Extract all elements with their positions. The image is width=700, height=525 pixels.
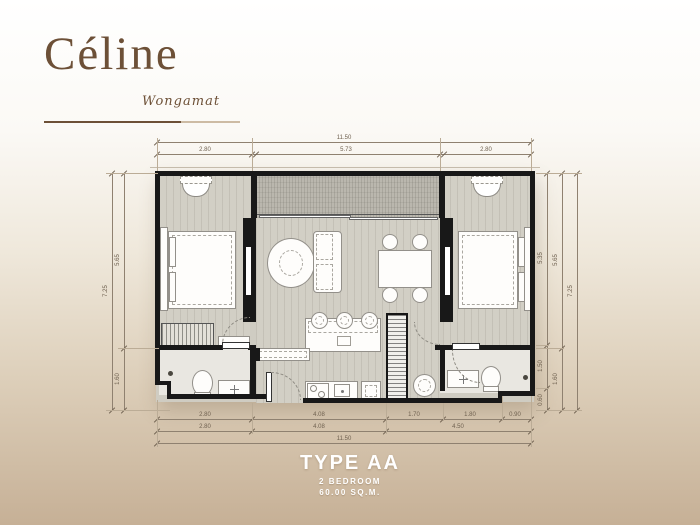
dimension-line xyxy=(547,173,548,410)
tv-left xyxy=(246,247,251,295)
brand-location: Wongamat xyxy=(142,94,220,109)
dim-extension-line xyxy=(502,396,503,421)
dining-table xyxy=(378,250,432,288)
dimension-line xyxy=(562,173,563,410)
dim-extension-line xyxy=(536,173,582,174)
tv-right xyxy=(445,247,450,295)
dim-extension-line xyxy=(536,410,582,411)
wall-balcony-pier-left xyxy=(251,175,257,218)
dining-chair xyxy=(412,234,428,250)
dim-label: 5.73 xyxy=(340,147,352,153)
dim-extension-line xyxy=(536,348,564,349)
dim-label-bottom-total: 11.50 xyxy=(337,436,352,442)
dim-extension-line xyxy=(252,138,253,171)
bed-left-headboard xyxy=(160,227,168,311)
dim-label-right-total: 7.25 xyxy=(568,285,574,297)
service-shaft xyxy=(386,313,408,402)
parapet-line xyxy=(150,167,540,168)
dim-label: 2.80 xyxy=(199,424,211,430)
dim-label: 1.70 xyxy=(408,412,420,418)
dim-extension-line xyxy=(531,138,532,171)
shower-drain-right xyxy=(523,375,528,380)
dim-label: 5.65 xyxy=(553,254,559,266)
dim-label-left-total: 7.25 xyxy=(103,285,109,297)
unit-type-title: TYPE AA xyxy=(250,452,450,475)
dim-label: 1.60 xyxy=(553,373,559,385)
wall-left xyxy=(155,171,160,385)
dim-label: 0.60 xyxy=(538,394,544,406)
sofa xyxy=(313,231,342,293)
sliding-door-panel xyxy=(349,217,438,220)
dim-extension-line xyxy=(536,388,549,389)
wall-bottom-center xyxy=(303,398,502,403)
unit-bedrooms: 2 BEDROOM xyxy=(250,477,450,486)
shower-drain-left xyxy=(168,371,173,376)
wardrobe-left xyxy=(161,323,214,346)
dim-label: 4.08 xyxy=(313,424,325,430)
wall-left-bathroom-side xyxy=(250,350,256,398)
brand-divider xyxy=(44,121,240,123)
sliding-door-panel xyxy=(259,215,351,218)
armchair-round xyxy=(267,238,315,288)
dim-extension-line xyxy=(106,173,158,174)
dim-label: 2.80 xyxy=(480,147,492,153)
unit-area: 60.00 SQ.M. xyxy=(250,488,450,497)
door-leaf-left-bathroom xyxy=(222,342,250,349)
dim-extension-line xyxy=(440,138,441,171)
bed-left-mattress xyxy=(168,231,236,309)
wall-left-bathroom xyxy=(159,345,223,350)
dining-chair xyxy=(382,287,398,303)
stove xyxy=(307,383,329,399)
dim-label: 5.65 xyxy=(115,254,121,266)
dim-label-top-total: 11.50 xyxy=(337,135,352,141)
dim-label: 2.80 xyxy=(199,412,211,418)
dim-extension-line xyxy=(106,410,170,411)
dim-label: 4.50 xyxy=(452,424,464,430)
bar-stool xyxy=(311,312,328,329)
dim-extension-line xyxy=(536,345,549,346)
dim-extension-line xyxy=(118,348,159,349)
wall-top xyxy=(155,171,535,176)
dining-chair xyxy=(382,234,398,250)
wall-right-bathroom xyxy=(480,345,535,350)
wall-balcony-pier-right xyxy=(439,175,445,218)
dim-label: 1.80 xyxy=(464,412,476,418)
dimension-line xyxy=(157,154,531,155)
dimension-line xyxy=(157,419,531,420)
dim-label: 1.60 xyxy=(115,373,121,385)
dimension-line xyxy=(157,443,531,444)
door-leaf-right-bathroom xyxy=(452,343,480,350)
bed-left-pillow xyxy=(169,272,176,302)
dim-label: 5.35 xyxy=(538,252,544,264)
dim-label: 1.50 xyxy=(538,360,544,372)
dim-extension-line xyxy=(252,403,253,434)
wall-right xyxy=(530,171,535,393)
washing-machine xyxy=(413,374,436,397)
dim-extension-line xyxy=(157,400,158,447)
dimension-line xyxy=(112,173,113,410)
dimension-line xyxy=(577,173,578,410)
toilet-right-tank xyxy=(483,386,499,392)
bar-stool xyxy=(336,312,353,329)
vanity-table-left xyxy=(180,176,212,184)
dimension-line xyxy=(157,142,531,143)
cabinet-end-panel xyxy=(256,348,260,361)
dim-extension-line xyxy=(157,138,158,171)
dimension-line xyxy=(157,431,531,432)
dim-label: 2.80 xyxy=(199,147,211,153)
dimension-line xyxy=(124,173,125,410)
floor-balcony xyxy=(256,175,440,218)
dim-label: 0.90 xyxy=(509,412,521,418)
bed-left-pillow xyxy=(169,237,176,267)
storage-cabinet xyxy=(256,348,310,361)
kitchen-sink xyxy=(334,384,350,397)
bed-right-mattress xyxy=(458,231,518,309)
bar-stool xyxy=(361,312,378,329)
dim-label: 4.08 xyxy=(313,412,325,418)
vanity-table-right xyxy=(471,176,503,184)
dim-extension-line xyxy=(531,396,532,447)
floor-plan-page: Céline Wongamat xyxy=(0,0,700,525)
brand-logo: Céline xyxy=(44,30,179,78)
dining-chair xyxy=(412,287,428,303)
dim-extension-line xyxy=(443,403,444,421)
dim-extension-line xyxy=(386,403,387,434)
wall-right-bathroom-side xyxy=(440,350,445,391)
